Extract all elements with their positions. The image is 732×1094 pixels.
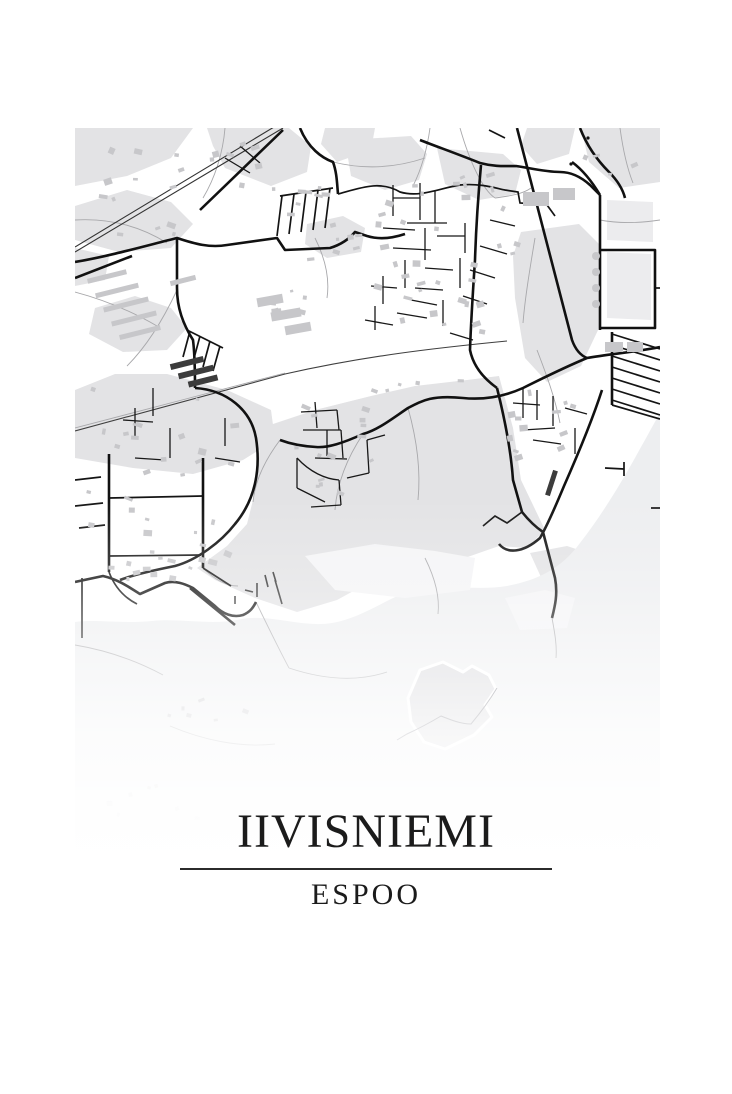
map-canvas	[75, 128, 660, 868]
page-subtitle: ESPOO	[0, 878, 732, 911]
map-graphic	[75, 128, 660, 868]
map-poster: IIVISNIEMI ESPOO	[0, 0, 732, 1094]
title-divider	[180, 868, 552, 870]
